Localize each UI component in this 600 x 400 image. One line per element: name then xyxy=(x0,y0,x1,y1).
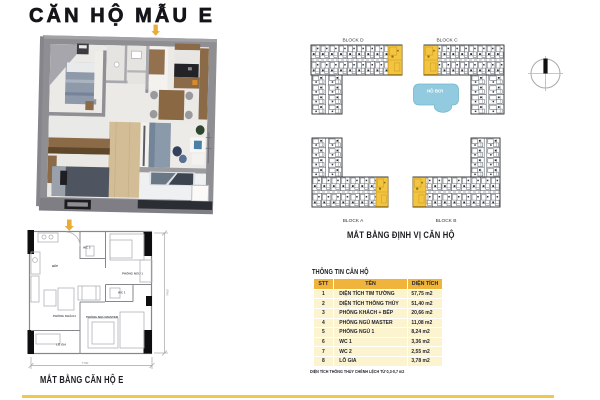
svg-text:7700: 7700 xyxy=(82,361,89,365)
svg-text:BLOCK B: BLOCK B xyxy=(436,218,457,224)
svg-text:BẾP: BẾP xyxy=(52,263,58,268)
svg-text:LÔ GIA: LÔ GIA xyxy=(56,342,67,347)
svg-text:BLOCK D: BLOCK D xyxy=(342,38,364,44)
svg-text:WC 1: WC 1 xyxy=(118,291,126,295)
svg-text:PHÒNG NGỦ MASTER: PHÒNG NGỦ MASTER xyxy=(86,314,119,319)
svg-text:BLOCK C: BLOCK C xyxy=(436,38,458,44)
svg-text:HỒ BƠI: HỒ BƠI xyxy=(427,89,443,94)
svg-text:PHÒNG NGỦ 1: PHÒNG NGỦ 1 xyxy=(122,271,143,276)
svg-text:7400: 7400 xyxy=(166,289,170,296)
svg-text:BLOCK A: BLOCK A xyxy=(343,218,364,224)
svg-text:WC 2: WC 2 xyxy=(83,246,91,250)
svg-text:PHÒNG KHÁCH: PHÒNG KHÁCH xyxy=(53,313,76,318)
